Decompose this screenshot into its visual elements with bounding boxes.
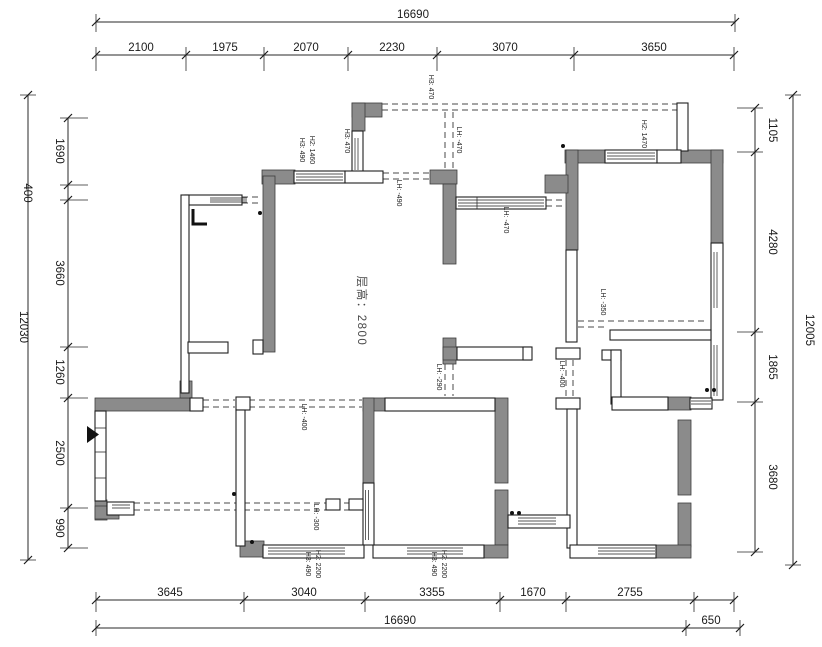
window-height-label: H2: 1470 <box>640 120 647 149</box>
dim-left-segment-3: 1260 <box>53 359 65 385</box>
window-height-label: H3: 490 <box>304 552 311 577</box>
dim-bottom-segment-4: 2755 <box>617 587 643 599</box>
dim-bottom-segment-3: 1670 <box>520 587 546 599</box>
beam-height-label: LH: -300 <box>312 504 319 531</box>
beam-height-label: LH: -290 <box>435 364 442 391</box>
dimension-chain-top: 16690 2100 1975 2070 2230 3070 3650 <box>92 9 739 71</box>
window-height-label: H3: 470 <box>427 75 434 100</box>
dim-left-segment-4: 2500 <box>53 440 65 466</box>
dim-left-segment-0: 1690 <box>53 138 65 164</box>
dim-bottom-segment-0: 3645 <box>157 587 183 599</box>
beam-height-label: LH: -400 <box>558 361 565 388</box>
dim-right-segment-1: 4280 <box>766 229 778 255</box>
beam-height-label: LH: -350 <box>599 289 606 316</box>
dim-right-total: 12005 <box>803 314 815 346</box>
window-height-label: H2: 2200 <box>314 550 321 579</box>
window-height-label: H2: 1460 <box>308 136 315 165</box>
beam-height-label: LH: -400 <box>300 404 307 431</box>
dim-top-segment-1: 1975 <box>212 42 238 54</box>
dim-left-total: 12030 <box>17 311 29 343</box>
dim-top-segment-5: 3650 <box>641 42 667 54</box>
dim-bottom-segment-1: 3040 <box>291 587 317 599</box>
dim-top-segment-4: 3070 <box>492 42 518 54</box>
beam-height-label: LH: -490 <box>395 180 402 207</box>
dimension-chain-left: 12030 1690 400 3660 1260 2500 990 <box>17 91 88 564</box>
dim-left-segment-1: 400 <box>21 183 33 202</box>
floor-plan-canvas: 16690 2100 1975 2070 2230 3070 3650 1203… <box>0 0 822 647</box>
dimension-chain-bottom: 3645 3040 3355 1670 2755 16690 650 <box>92 587 744 636</box>
dim-right-segment-2: 1865 <box>766 354 778 380</box>
window-height-label: H2: 2200 <box>440 550 447 579</box>
beam-dashed-lines <box>134 104 708 510</box>
window-height-label: H3: 470 <box>343 129 350 154</box>
walls-partition <box>95 103 723 558</box>
dim-bottom-segment-2: 3355 <box>419 587 445 599</box>
dim-top-segment-2: 2070 <box>293 42 319 54</box>
dim-bottom-total: 16690 <box>384 615 416 627</box>
dim-bottom-extra: 650 <box>701 615 720 627</box>
dim-top-segment-0: 2100 <box>128 42 154 54</box>
dim-right-segment-3: 3680 <box>766 464 778 490</box>
dim-top-segment-3: 2230 <box>379 42 405 54</box>
dim-left-segment-5: 990 <box>53 518 65 537</box>
floor-height-label: 层高：2800 <box>355 276 369 347</box>
floor-plan-page: 16690 2100 1975 2070 2230 3070 3650 1203… <box>0 0 822 647</box>
beam-height-label: LH: -470 <box>455 127 462 154</box>
door-corner-detail <box>193 209 207 224</box>
dim-top-total: 16690 <box>397 9 429 21</box>
dim-right-segment-0: 1105 <box>766 118 778 143</box>
beam-height-label: LH: -470 <box>502 207 509 234</box>
dimension-chain-right: 12005 1105 4280 1865 3680 <box>737 91 815 569</box>
window-height-label: H3: 490 <box>298 138 305 163</box>
window-height-label: H3: 490 <box>430 552 437 577</box>
dim-left-segment-2: 3660 <box>53 260 65 286</box>
